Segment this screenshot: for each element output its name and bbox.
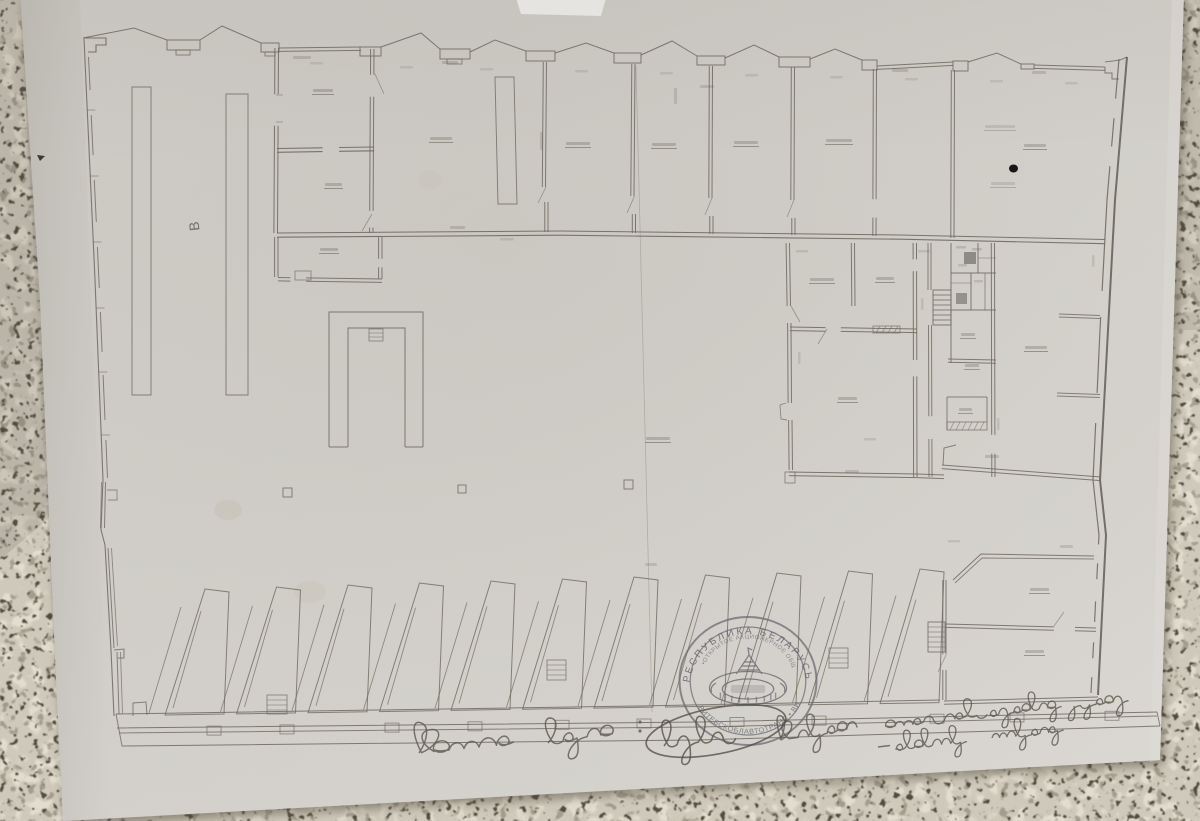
svg-text:B: B [186,221,203,232]
